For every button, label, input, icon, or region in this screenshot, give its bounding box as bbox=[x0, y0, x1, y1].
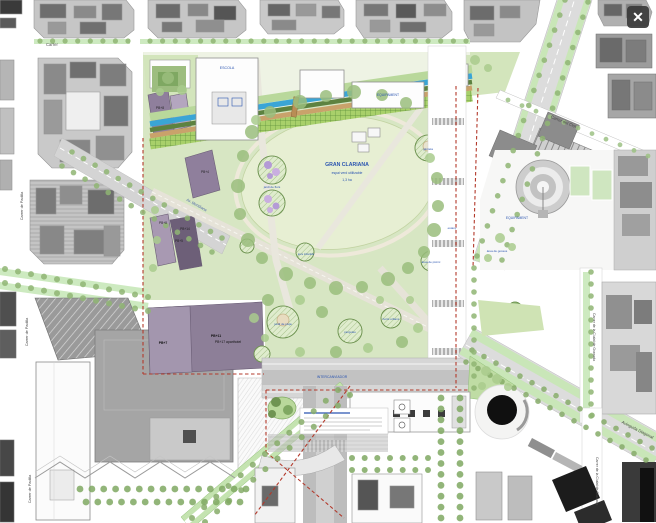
tree bbox=[130, 499, 137, 506]
tree bbox=[88, 38, 93, 43]
tree bbox=[577, 406, 583, 412]
tree bbox=[132, 292, 138, 298]
tree bbox=[547, 405, 553, 411]
tree bbox=[571, 418, 577, 424]
tree bbox=[438, 38, 443, 43]
tree bbox=[471, 325, 477, 331]
tree bbox=[457, 515, 464, 522]
tree bbox=[376, 296, 384, 304]
label-pb5: PB+5 bbox=[175, 239, 183, 243]
label-carrer-granada-2: Carrer de la Ciutat de Granada bbox=[595, 457, 599, 505]
tree bbox=[632, 148, 637, 153]
tree bbox=[94, 183, 100, 189]
tree bbox=[545, 121, 551, 127]
tree bbox=[438, 427, 445, 434]
tree bbox=[481, 354, 487, 360]
tree bbox=[324, 38, 329, 43]
tree bbox=[431, 172, 443, 184]
tree bbox=[588, 269, 594, 275]
tree bbox=[529, 380, 535, 386]
tree bbox=[511, 385, 517, 391]
tree bbox=[250, 477, 256, 483]
tree bbox=[186, 236, 192, 242]
label-carrer-padilla-3: Carrer de Padilla bbox=[28, 474, 32, 503]
tree bbox=[148, 486, 155, 493]
tree bbox=[54, 290, 60, 296]
tree bbox=[583, 425, 589, 431]
tree bbox=[463, 38, 468, 43]
tree bbox=[374, 455, 380, 461]
tree bbox=[81, 156, 87, 162]
tree bbox=[413, 38, 418, 43]
tree bbox=[311, 408, 317, 414]
tree bbox=[140, 210, 146, 216]
tree bbox=[604, 137, 609, 142]
tree bbox=[588, 281, 594, 287]
tree bbox=[162, 202, 168, 208]
tree bbox=[347, 392, 353, 398]
tree bbox=[425, 467, 431, 473]
tree bbox=[261, 38, 266, 43]
tree bbox=[299, 419, 305, 425]
tree bbox=[15, 269, 21, 275]
tree bbox=[400, 38, 405, 43]
tree bbox=[523, 392, 529, 398]
tree bbox=[274, 38, 279, 43]
tree bbox=[311, 424, 317, 430]
tree bbox=[471, 337, 477, 343]
tree bbox=[457, 493, 464, 500]
tree bbox=[412, 455, 418, 461]
tree bbox=[457, 482, 464, 489]
tree bbox=[138, 189, 144, 195]
tree bbox=[350, 38, 355, 43]
tree bbox=[588, 365, 594, 371]
tree bbox=[438, 438, 445, 445]
tree bbox=[531, 88, 537, 94]
tree bbox=[299, 434, 305, 440]
tower-footprint bbox=[487, 395, 517, 425]
tree bbox=[115, 176, 121, 182]
tree bbox=[541, 386, 547, 392]
tree bbox=[41, 288, 47, 294]
tree bbox=[196, 222, 202, 228]
tree bbox=[264, 106, 276, 118]
tree bbox=[275, 456, 281, 462]
tree bbox=[550, 105, 556, 111]
tree bbox=[438, 416, 445, 423]
tree bbox=[588, 389, 594, 395]
tree bbox=[237, 499, 244, 506]
tree bbox=[153, 236, 161, 244]
tree bbox=[560, 75, 566, 81]
tree bbox=[41, 274, 47, 280]
tree bbox=[226, 483, 232, 489]
tree bbox=[185, 215, 191, 221]
tree bbox=[262, 451, 268, 457]
tree bbox=[231, 486, 238, 493]
tree bbox=[451, 38, 456, 43]
tree bbox=[262, 466, 268, 472]
tree bbox=[316, 306, 328, 318]
tree bbox=[207, 486, 214, 493]
label-escola: ESCOLA bbox=[220, 66, 235, 70]
tree bbox=[93, 284, 99, 290]
tree bbox=[457, 416, 464, 423]
tree bbox=[402, 262, 414, 274]
tree bbox=[214, 508, 220, 514]
tree bbox=[559, 412, 565, 418]
tree bbox=[54, 276, 60, 282]
tree bbox=[595, 431, 601, 437]
tree bbox=[80, 281, 86, 287]
tree bbox=[2, 266, 8, 272]
label-gran-clariana-area: 1,3 ha bbox=[342, 178, 352, 182]
tree bbox=[540, 136, 546, 142]
tree bbox=[347, 85, 361, 99]
label-pb8: PB+8 bbox=[159, 221, 167, 225]
tree bbox=[71, 170, 77, 176]
tree bbox=[356, 281, 368, 293]
tree bbox=[457, 406, 464, 413]
tree bbox=[105, 190, 111, 196]
tree bbox=[500, 178, 506, 184]
tree bbox=[198, 38, 203, 43]
close-button[interactable]: ✕ bbox=[627, 6, 649, 28]
label-equipament-1: EQUIPAMENT bbox=[377, 93, 399, 97]
tree bbox=[553, 393, 559, 399]
tree bbox=[118, 499, 125, 506]
tree bbox=[643, 457, 649, 463]
tree bbox=[234, 208, 246, 220]
tree bbox=[457, 449, 464, 456]
tree bbox=[575, 30, 581, 36]
tree bbox=[208, 229, 214, 235]
tree bbox=[438, 406, 445, 413]
tree bbox=[201, 499, 208, 506]
label-carrer-top: Carrer bbox=[46, 42, 58, 47]
tree bbox=[195, 486, 202, 493]
tree bbox=[92, 162, 98, 168]
tree bbox=[457, 438, 464, 445]
tree bbox=[471, 385, 477, 391]
tree bbox=[231, 179, 245, 193]
tree bbox=[509, 227, 515, 233]
tree bbox=[490, 208, 496, 214]
tree bbox=[77, 486, 84, 493]
tree bbox=[471, 361, 477, 367]
tree bbox=[177, 85, 187, 95]
tree bbox=[295, 347, 305, 357]
tree bbox=[400, 455, 406, 461]
tree bbox=[492, 374, 502, 384]
tree bbox=[93, 298, 99, 304]
tree bbox=[37, 38, 42, 43]
tree bbox=[493, 360, 499, 366]
tree bbox=[495, 233, 505, 243]
tree bbox=[67, 293, 73, 299]
tree bbox=[106, 286, 112, 292]
tree bbox=[119, 303, 125, 309]
tree bbox=[425, 455, 431, 461]
tree bbox=[225, 499, 232, 506]
tree bbox=[649, 445, 655, 451]
tree bbox=[552, 27, 558, 33]
label-carrer-padilla-1: Carrer de Padilla bbox=[20, 191, 24, 220]
tree bbox=[570, 45, 576, 51]
tree bbox=[119, 289, 125, 295]
tree bbox=[485, 223, 491, 229]
tree bbox=[28, 271, 34, 277]
tree bbox=[245, 125, 259, 139]
tree bbox=[63, 38, 68, 43]
tree bbox=[279, 267, 293, 281]
tree bbox=[525, 181, 531, 187]
label-pergoles: pèrgoles bbox=[344, 330, 356, 334]
tree bbox=[166, 499, 173, 506]
masterplan-map: CarrerCarrer del ClotCarrer de PadillaCa… bbox=[0, 0, 656, 523]
tree bbox=[173, 209, 179, 215]
tree bbox=[438, 449, 445, 456]
tree bbox=[295, 295, 305, 305]
tree bbox=[517, 373, 523, 379]
label-jocs-infantils: jocs infantils bbox=[297, 252, 315, 256]
tree bbox=[646, 154, 651, 159]
label-carrer-granada-1: Carrer de la Ciutat de Granada bbox=[592, 313, 596, 361]
tree bbox=[15, 283, 21, 289]
label-estany: estany bbox=[448, 226, 457, 230]
tree bbox=[185, 38, 190, 43]
tree bbox=[183, 486, 190, 493]
label-glorieta: glorieta bbox=[423, 147, 433, 151]
tree bbox=[251, 115, 261, 125]
tree bbox=[172, 486, 179, 493]
tree bbox=[213, 499, 220, 506]
tree bbox=[412, 467, 418, 473]
tree bbox=[198, 243, 204, 249]
tree bbox=[160, 38, 165, 43]
tree bbox=[113, 38, 118, 43]
tree bbox=[516, 133, 522, 139]
tree bbox=[588, 377, 594, 383]
tree bbox=[542, 57, 548, 63]
tree bbox=[349, 467, 355, 473]
tree bbox=[457, 395, 464, 402]
tree bbox=[607, 438, 613, 444]
tree bbox=[249, 313, 259, 323]
tree bbox=[388, 38, 393, 43]
tree bbox=[149, 264, 157, 272]
tree bbox=[154, 499, 161, 506]
label-pb17: PB+17 aparthotel bbox=[215, 340, 242, 344]
tree bbox=[262, 294, 274, 306]
tree bbox=[534, 109, 539, 114]
label-pb7: PB+7 bbox=[159, 341, 168, 345]
tree bbox=[432, 200, 444, 212]
tree bbox=[588, 305, 594, 311]
tree bbox=[241, 233, 255, 247]
tree bbox=[438, 504, 445, 511]
tree bbox=[323, 398, 329, 404]
tree bbox=[457, 504, 464, 511]
tree bbox=[286, 38, 291, 43]
tree bbox=[508, 243, 516, 251]
tree bbox=[381, 272, 395, 286]
tree bbox=[362, 455, 368, 461]
tree bbox=[335, 403, 341, 409]
tree bbox=[362, 38, 367, 43]
tree bbox=[219, 235, 225, 241]
tree bbox=[127, 182, 133, 188]
tree bbox=[413, 323, 423, 333]
tree bbox=[335, 387, 341, 393]
tree bbox=[471, 349, 477, 355]
tree bbox=[312, 38, 317, 43]
tree bbox=[211, 38, 216, 43]
label-area-picnic: àrea de picnic bbox=[422, 260, 441, 264]
tree bbox=[471, 313, 477, 319]
tree bbox=[59, 163, 65, 169]
label-equipament-2: EQUIPAMENT bbox=[506, 216, 528, 220]
tree bbox=[425, 153, 435, 163]
tree bbox=[82, 176, 88, 182]
tree bbox=[457, 471, 464, 478]
tree bbox=[304, 277, 316, 289]
tree bbox=[438, 395, 445, 402]
tree bbox=[243, 486, 250, 493]
tree bbox=[337, 38, 342, 43]
label-gran-clariana-sub: espai verd utilitzable bbox=[332, 171, 363, 175]
tree bbox=[100, 486, 107, 493]
tree bbox=[618, 142, 623, 147]
tree bbox=[256, 252, 268, 264]
tree bbox=[471, 277, 477, 283]
tree bbox=[580, 14, 586, 20]
tree bbox=[601, 419, 607, 425]
tree bbox=[475, 366, 481, 372]
tree bbox=[471, 301, 477, 307]
tree bbox=[349, 455, 355, 461]
tree bbox=[189, 499, 196, 506]
tree bbox=[438, 482, 445, 489]
label-carrer-padilla-2: Carrer de Padilla bbox=[25, 317, 29, 346]
tree bbox=[510, 148, 516, 154]
tree bbox=[631, 451, 637, 457]
tree bbox=[236, 38, 241, 43]
label-area-gossos: àrea de gossos bbox=[487, 249, 508, 253]
tree bbox=[189, 515, 195, 521]
tree bbox=[156, 88, 164, 96]
label-pb4: PB+4 bbox=[201, 170, 209, 174]
tree bbox=[520, 103, 525, 108]
label-pb11: PB+11 bbox=[211, 334, 221, 338]
tree bbox=[470, 55, 480, 65]
tree bbox=[438, 493, 445, 500]
tree bbox=[106, 300, 112, 306]
tree bbox=[484, 254, 492, 262]
tree bbox=[287, 445, 293, 451]
tree bbox=[320, 90, 332, 102]
tree bbox=[536, 73, 542, 79]
tree bbox=[152, 216, 158, 222]
label-jardi-pluja: jardí de pluja bbox=[273, 322, 292, 326]
tree bbox=[535, 151, 541, 157]
plan-viewer: CarrerCarrer del ClotCarrer de PadillaCa… bbox=[0, 0, 656, 523]
tree bbox=[438, 471, 445, 478]
tree bbox=[530, 166, 536, 172]
tree bbox=[471, 373, 477, 379]
tree bbox=[330, 346, 342, 358]
tree bbox=[619, 444, 625, 450]
tree bbox=[504, 383, 512, 391]
tree bbox=[162, 72, 174, 84]
tree bbox=[323, 413, 329, 419]
tree bbox=[117, 196, 123, 202]
tree bbox=[387, 467, 393, 473]
tree bbox=[637, 439, 643, 445]
tree bbox=[142, 499, 149, 506]
tree bbox=[238, 472, 244, 478]
label-horts-urbans: horts urbans bbox=[383, 317, 400, 321]
tree bbox=[457, 460, 464, 467]
tree bbox=[374, 467, 380, 473]
tree bbox=[94, 499, 101, 506]
tree bbox=[463, 359, 469, 365]
tree bbox=[128, 203, 134, 209]
tree bbox=[471, 265, 477, 271]
tree bbox=[209, 249, 215, 255]
tree bbox=[505, 367, 511, 373]
tree bbox=[106, 499, 113, 506]
tree bbox=[67, 279, 73, 285]
tree bbox=[83, 499, 90, 506]
tree bbox=[479, 238, 485, 244]
tree bbox=[132, 306, 138, 312]
tree bbox=[625, 432, 631, 438]
tree bbox=[274, 440, 280, 446]
tree bbox=[112, 486, 119, 493]
tree bbox=[219, 486, 226, 493]
tree bbox=[481, 366, 491, 376]
tree bbox=[438, 515, 445, 522]
tree bbox=[471, 289, 477, 295]
tree bbox=[177, 499, 184, 506]
tree bbox=[249, 38, 254, 43]
tree bbox=[557, 12, 563, 18]
label-intercanviador: INTERCANVIADOR bbox=[317, 375, 348, 379]
tree bbox=[147, 38, 152, 43]
tree bbox=[28, 285, 34, 291]
tree bbox=[547, 42, 553, 48]
tree bbox=[136, 486, 143, 493]
tree bbox=[299, 38, 304, 43]
tree bbox=[293, 95, 307, 109]
tree bbox=[124, 486, 131, 493]
tree bbox=[237, 150, 249, 162]
tree bbox=[495, 193, 501, 199]
tree bbox=[590, 131, 595, 136]
tree bbox=[145, 294, 151, 300]
tree bbox=[396, 336, 408, 348]
tree bbox=[505, 163, 511, 169]
tree bbox=[100, 38, 105, 43]
tree bbox=[400, 467, 406, 473]
tree bbox=[362, 467, 368, 473]
tree bbox=[223, 38, 228, 43]
tree bbox=[329, 281, 343, 295]
tree bbox=[160, 486, 167, 493]
tree bbox=[363, 343, 373, 353]
